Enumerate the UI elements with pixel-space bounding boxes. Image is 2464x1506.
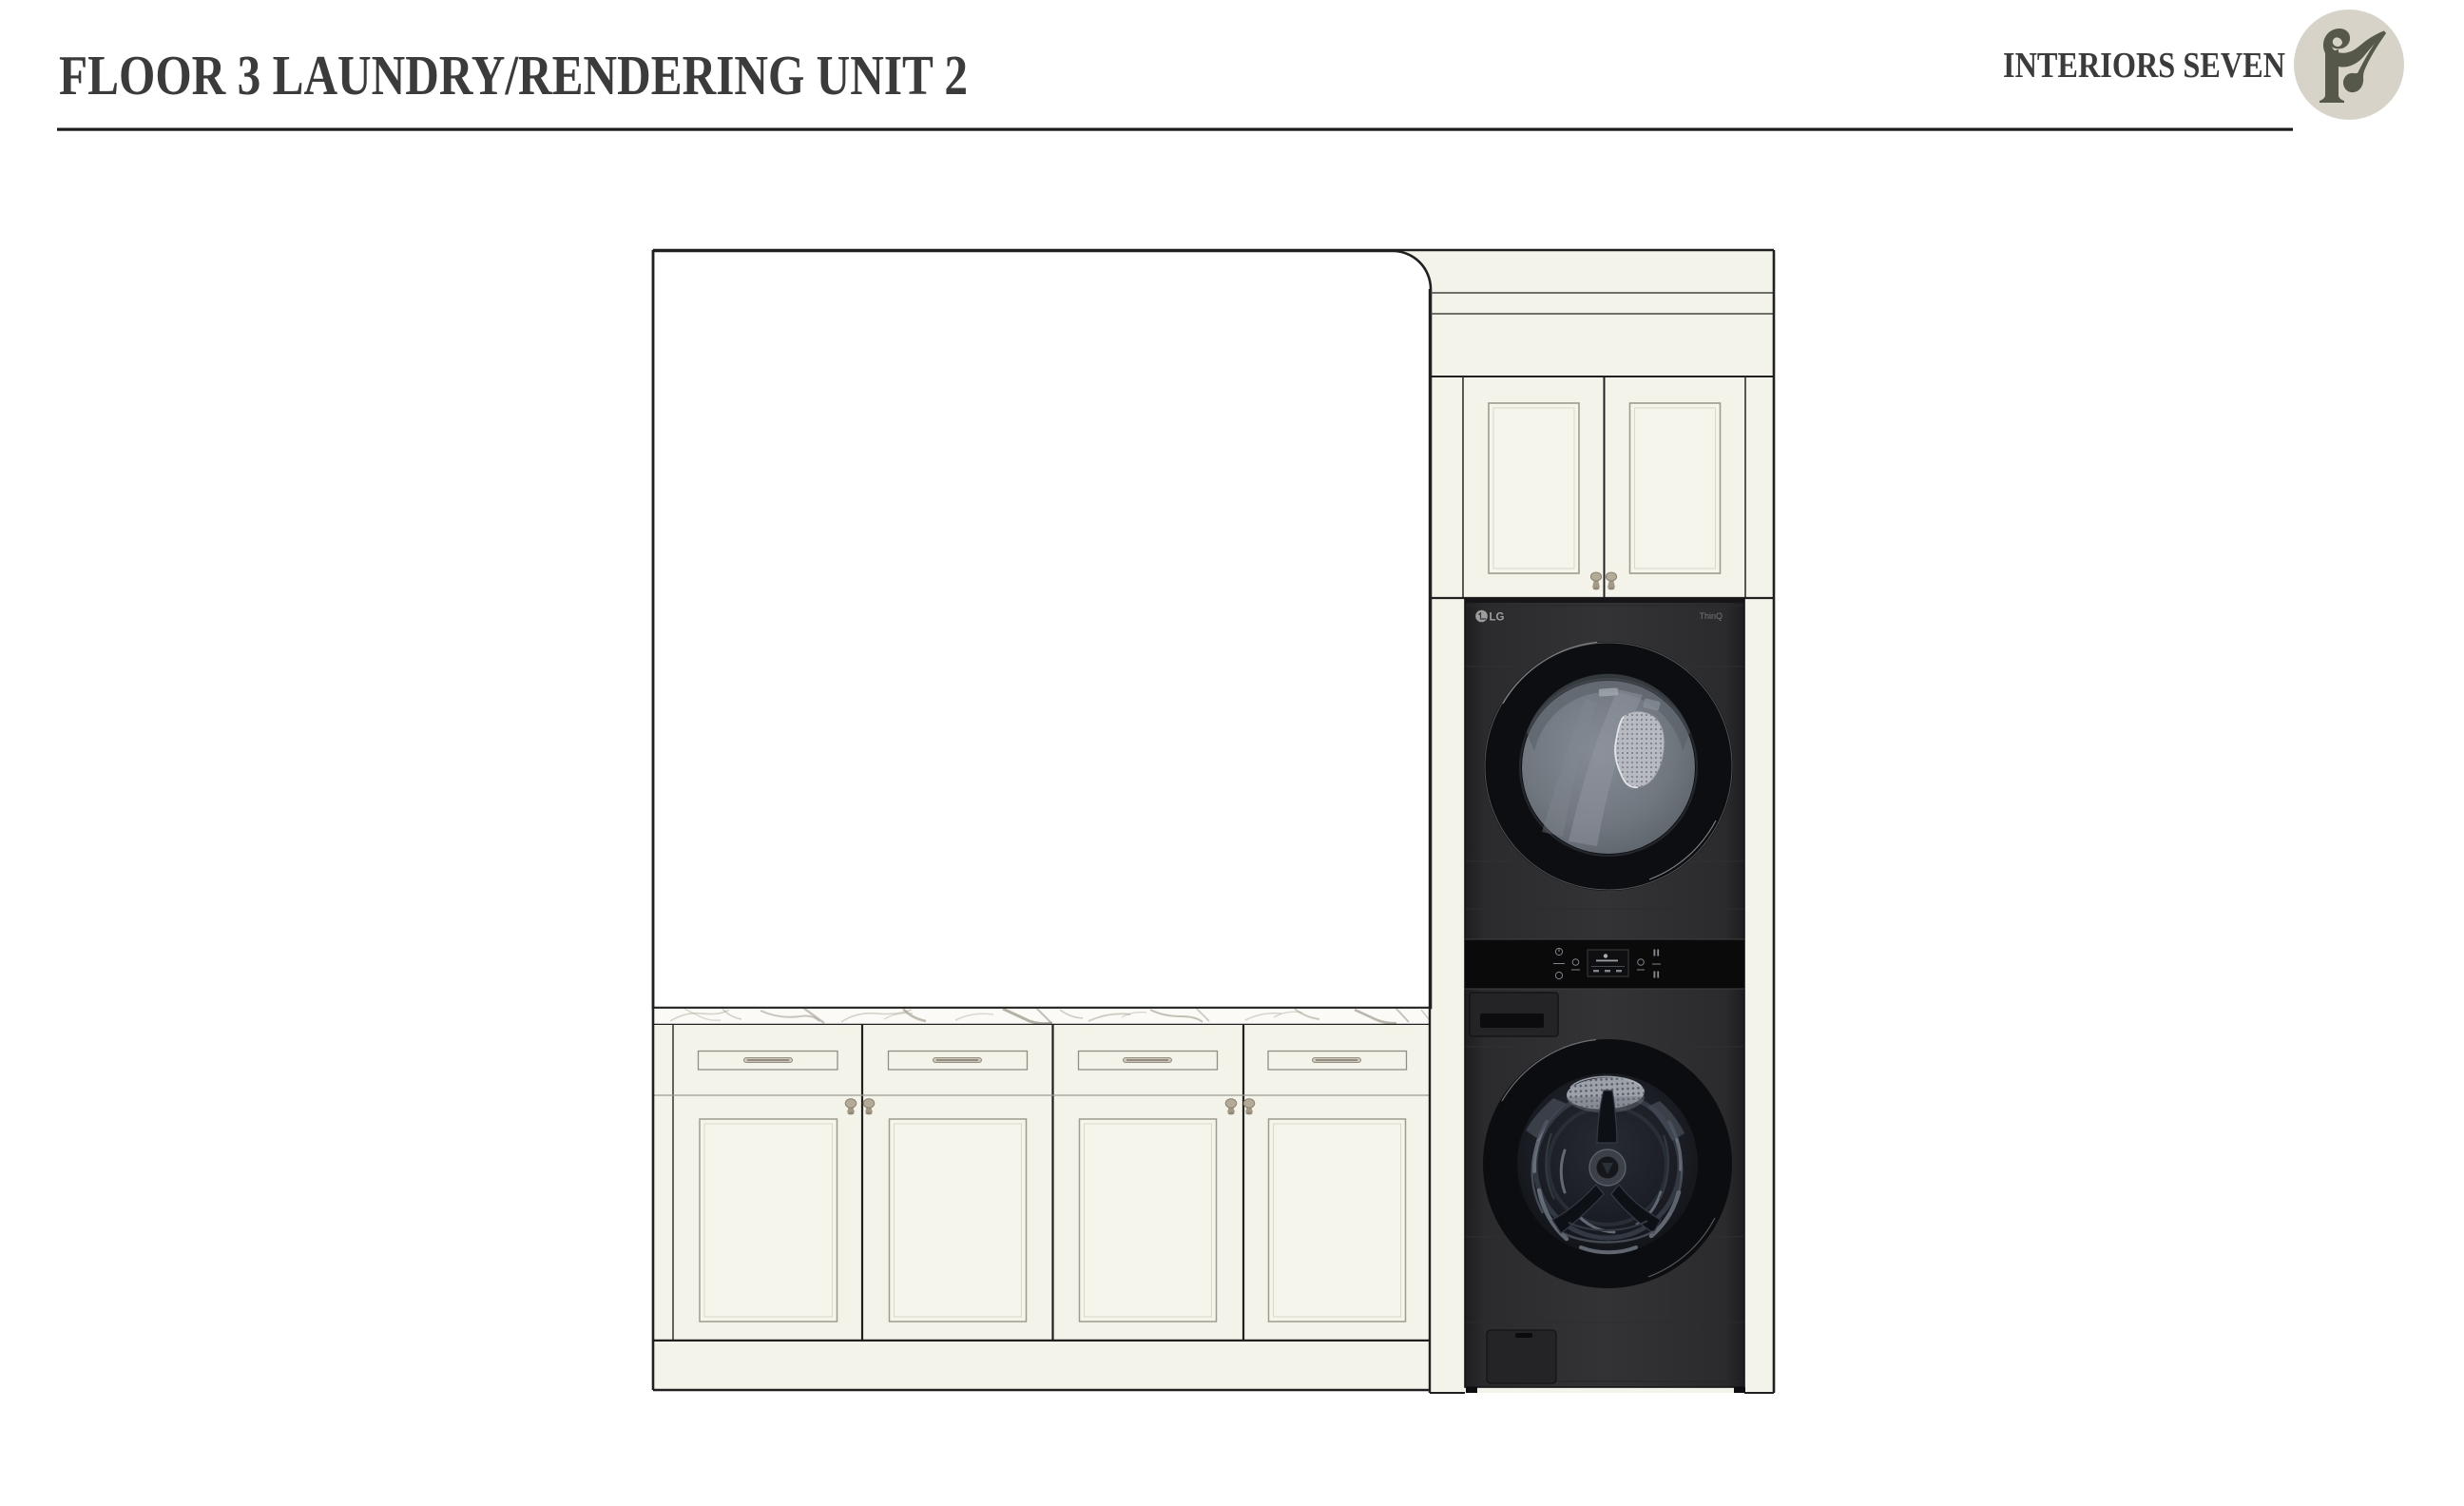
- svg-text:LG: LG: [1490, 612, 1505, 624]
- svg-text:FLOOR 3 LAUNDRY/RENDERING UNIT: FLOOR 3 LAUNDRY/RENDERING UNIT 2: [59, 44, 968, 106]
- svg-text:ThinQ: ThinQ: [1699, 611, 1723, 621]
- svg-text:INTERIORS SEVEN: INTERIORS SEVEN: [2003, 46, 2285, 86]
